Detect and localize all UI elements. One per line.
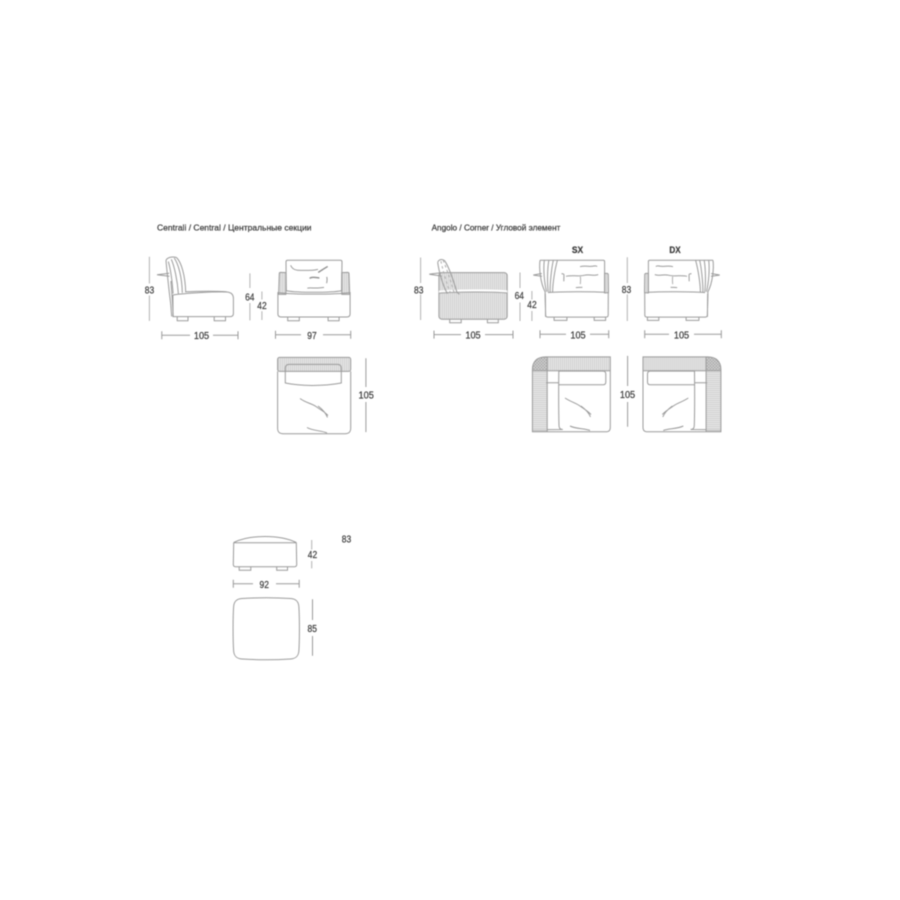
svg-text:83: 83 (145, 286, 155, 297)
svg-text:105: 105 (465, 331, 481, 342)
svg-text:83: 83 (622, 285, 632, 296)
svg-text:97: 97 (307, 331, 317, 342)
svg-text:105: 105 (359, 391, 375, 402)
svg-text:42: 42 (527, 300, 537, 311)
svg-text:64: 64 (245, 293, 255, 304)
svg-text:SX: SX (572, 245, 584, 255)
svg-text:42: 42 (308, 550, 318, 561)
svg-text:83: 83 (414, 285, 424, 296)
svg-text:42: 42 (257, 301, 267, 312)
svg-text:92: 92 (260, 580, 270, 591)
svg-text:105: 105 (620, 390, 636, 401)
svg-text:83: 83 (342, 535, 352, 546)
svg-text:DX: DX (669, 245, 681, 255)
svg-text:105: 105 (570, 330, 586, 341)
svg-text:105: 105 (674, 330, 690, 341)
svg-text:Centrali / Central / Центральн: Centrali / Central / Центральные секции (157, 224, 312, 233)
svg-text:85: 85 (308, 624, 318, 635)
svg-text:Angolo / Corner / Угловой элем: Angolo / Corner / Угловой элемент (432, 224, 561, 233)
svg-text:64: 64 (515, 291, 525, 302)
svg-text:105: 105 (194, 331, 210, 342)
